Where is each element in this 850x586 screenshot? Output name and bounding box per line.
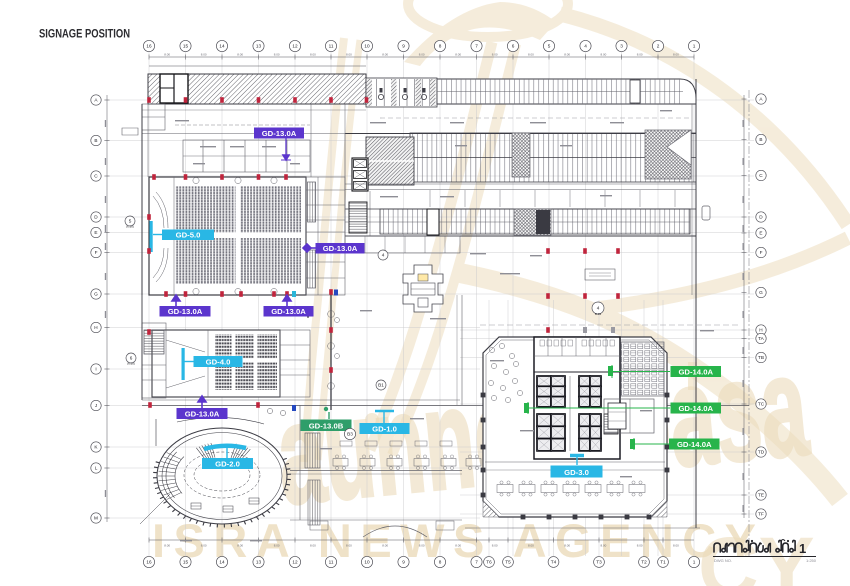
svg-text:TF: TF (758, 512, 764, 517)
svg-text:GD-13.0A: GD-13.0A (271, 307, 306, 316)
svg-text:T2: T2 (641, 560, 647, 565)
svg-text:I: I (95, 367, 96, 372)
svg-text:B-01: B-01 (595, 312, 602, 316)
svg-text:J: J (95, 403, 97, 408)
svg-text:E: E (94, 230, 97, 235)
svg-text:1: 1 (693, 44, 696, 49)
svg-text:7: 7 (475, 44, 478, 49)
svg-text:11: 11 (329, 44, 334, 49)
svg-text:13: 13 (256, 44, 262, 49)
svg-text:GD-13.0A: GD-13.0A (168, 307, 203, 316)
svg-text:6: 6 (130, 356, 133, 361)
svg-text:8.00: 8.00 (673, 543, 679, 547)
svg-text:8.00: 8.00 (164, 543, 170, 547)
svg-text:8.00: 8.00 (455, 543, 461, 547)
svg-text:8: 8 (439, 560, 442, 565)
svg-text:2: 2 (657, 44, 660, 49)
svg-text:8.00: 8.00 (310, 543, 316, 547)
svg-text:B3: B3 (347, 432, 353, 437)
svg-text:GD-2.0: GD-2.0 (215, 460, 240, 469)
svg-text:8.00: 8.00 (310, 53, 316, 57)
svg-text:TD: TD (758, 450, 765, 455)
svg-text:12: 12 (292, 44, 298, 49)
svg-text:8.00: 8.00 (601, 543, 607, 547)
svg-text:(6.50): (6.50) (126, 225, 134, 229)
svg-text:TC: TC (758, 402, 765, 407)
svg-text:B: B (94, 138, 97, 143)
svg-text:3: 3 (620, 44, 623, 49)
svg-text:TE: TE (758, 493, 764, 498)
svg-text:F: F (95, 250, 98, 255)
svg-text:8.00: 8.00 (564, 543, 570, 547)
svg-text:14: 14 (219, 560, 225, 565)
svg-text:5: 5 (129, 219, 132, 224)
svg-text:TA: TA (758, 336, 765, 341)
svg-text:GD-13.0A: GD-13.0A (185, 410, 220, 419)
svg-text:GD-13.0A: GD-13.0A (262, 129, 297, 138)
svg-text:4: 4 (597, 306, 600, 311)
svg-text:B: B (759, 137, 762, 142)
svg-text:8: 8 (439, 44, 442, 49)
svg-text:CY: CY (698, 520, 815, 586)
svg-text:4: 4 (584, 44, 587, 49)
svg-text:8.00: 8.00 (492, 543, 498, 547)
svg-text:10: 10 (364, 44, 370, 49)
svg-text:T3: T3 (596, 560, 602, 565)
svg-text:16: 16 (146, 560, 152, 565)
svg-text:8.00: 8.00 (346, 53, 352, 57)
svg-text:GD-5.0: GD-5.0 (176, 231, 201, 240)
svg-text:1:250: 1:250 (806, 558, 817, 563)
svg-text:B1: B1 (378, 383, 384, 388)
svg-text:GD-13.0A: GD-13.0A (323, 244, 358, 253)
svg-text:H: H (94, 325, 97, 330)
svg-text:5: 5 (548, 44, 551, 49)
svg-text:8.00: 8.00 (455, 53, 461, 57)
svg-text:8.00: 8.00 (419, 53, 425, 57)
svg-text:8.00: 8.00 (201, 543, 207, 547)
svg-text:8.00: 8.00 (382, 543, 388, 547)
svg-text:8.00: 8.00 (564, 53, 570, 57)
svg-text:8.00: 8.00 (382, 53, 388, 57)
svg-text:T6: T6 (486, 560, 492, 565)
svg-text:GD-4.0: GD-4.0 (206, 358, 231, 367)
svg-text:8.00: 8.00 (637, 543, 643, 547)
svg-text:14: 14 (219, 44, 225, 49)
svg-text:8.00: 8.00 (637, 53, 643, 57)
svg-text:G: G (759, 290, 763, 295)
svg-text:(6.50): (6.50) (127, 362, 135, 366)
svg-text:GD-14.0A: GD-14.0A (678, 404, 713, 413)
svg-text:T4: T4 (551, 560, 557, 565)
svg-text:8.00: 8.00 (237, 543, 243, 547)
svg-text:4: 4 (382, 253, 385, 258)
svg-text:1: 1 (693, 560, 696, 565)
svg-text:8.00: 8.00 (164, 53, 170, 57)
svg-text:7: 7 (475, 560, 478, 565)
svg-text:DWG NO.: DWG NO. (714, 558, 732, 563)
svg-text:8.00: 8.00 (419, 543, 425, 547)
svg-text:8.00: 8.00 (346, 543, 352, 547)
svg-text:GD-13.0B: GD-13.0B (309, 422, 344, 431)
svg-text:L: L (95, 466, 98, 471)
svg-text:8.00: 8.00 (274, 53, 280, 57)
svg-text:8.00: 8.00 (673, 53, 679, 57)
svg-text:8.00: 8.00 (237, 53, 243, 57)
svg-text:6: 6 (512, 44, 515, 49)
svg-text:GD-14.0A: GD-14.0A (677, 440, 712, 449)
svg-text:10: 10 (364, 560, 370, 565)
svg-text:13: 13 (256, 560, 262, 565)
svg-text:G: G (94, 292, 98, 297)
svg-text:GD-14.0A: GD-14.0A (678, 368, 713, 377)
svg-text:9: 9 (402, 44, 405, 49)
svg-text:11: 11 (329, 560, 334, 565)
svg-text:8.00: 8.00 (601, 53, 607, 57)
svg-text:8.00: 8.00 (274, 543, 280, 547)
svg-text:T5: T5 (505, 560, 511, 565)
svg-text:SIGNAGE POSITION: SIGNAGE POSITION (39, 27, 130, 41)
svg-text:T1: T1 (660, 560, 666, 565)
svg-text:16: 16 (146, 44, 152, 49)
svg-text:8.00: 8.00 (492, 53, 498, 57)
svg-text:8.00: 8.00 (201, 53, 207, 57)
svg-text:GD-1.0: GD-1.0 (372, 425, 397, 434)
svg-text:1: 1 (799, 541, 806, 556)
svg-text:8.00: 8.00 (528, 543, 534, 547)
svg-text:15: 15 (183, 44, 189, 49)
svg-text:E: E (759, 231, 762, 236)
svg-text:GD-3.0: GD-3.0 (564, 468, 589, 477)
svg-text:TB: TB (758, 355, 764, 360)
svg-text:9: 9 (402, 560, 405, 565)
svg-text:F: F (760, 250, 763, 255)
svg-text:15: 15 (183, 560, 189, 565)
svg-text:8.00: 8.00 (528, 53, 534, 57)
svg-text:M: M (94, 516, 98, 521)
svg-text:12: 12 (292, 560, 298, 565)
svg-text:H: H (759, 328, 762, 333)
